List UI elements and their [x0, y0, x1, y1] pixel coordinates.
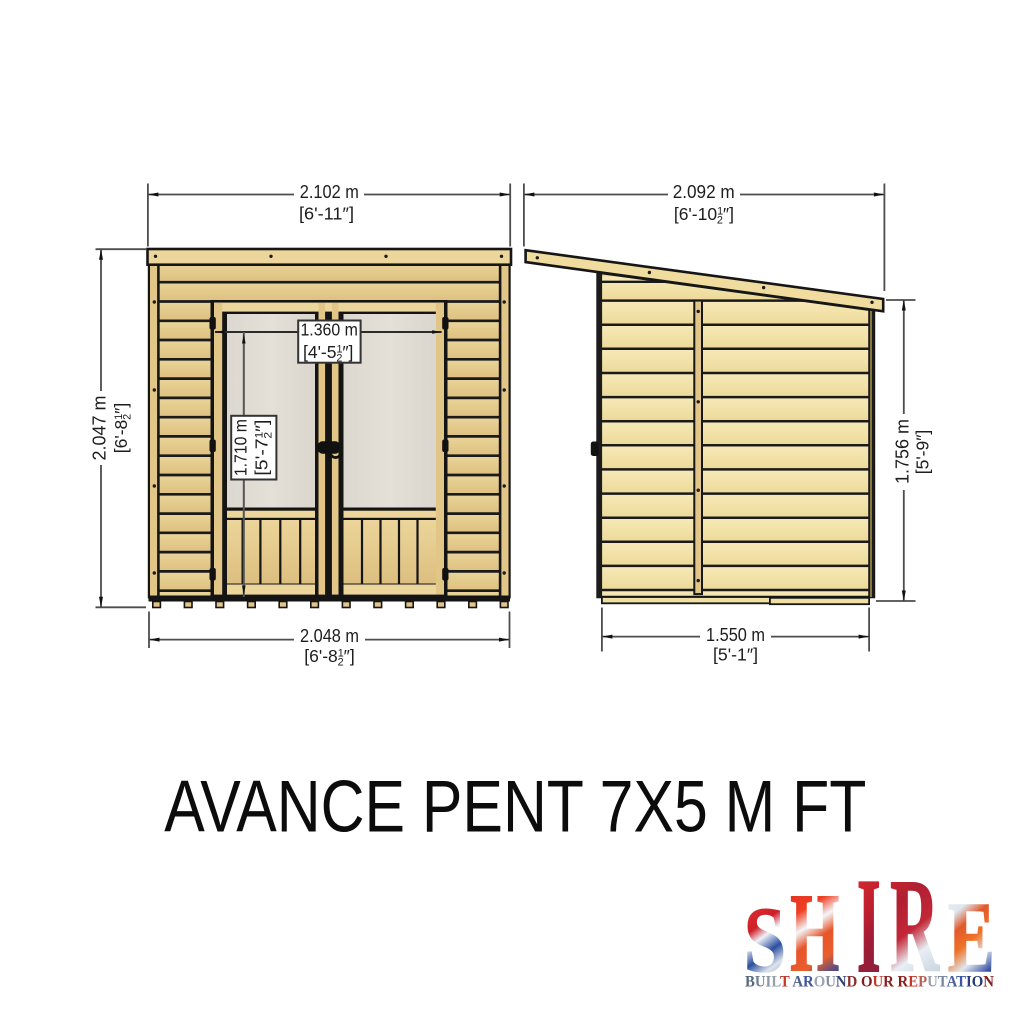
svg-text:AVANCE PENT 7X5 M FT: AVANCE PENT 7X5 M FT	[164, 765, 866, 847]
svg-text:[5'-712″]: [5'-712″]	[252, 420, 275, 476]
svg-text:[6'-11″]: [6'-11″]	[299, 203, 354, 223]
svg-text:2.048 m: 2.048 m	[300, 626, 359, 646]
svg-text:1.360 m: 1.360 m	[300, 320, 358, 340]
svg-text:2.047 m: 2.047 m	[90, 395, 110, 460]
svg-text:2.092 m: 2.092 m	[673, 182, 735, 202]
svg-text:[4'-512″]: [4'-512″]	[303, 342, 353, 365]
svg-text:[6'-812″]: [6'-812″]	[304, 646, 354, 669]
svg-text:[6'-1012″]: [6'-1012″]	[674, 204, 734, 227]
svg-text:1.710 m: 1.710 m	[231, 419, 251, 476]
svg-text:[6'-812″]: [6'-812″]	[111, 403, 134, 453]
svg-text:BUILT AROUND OUR REPUTATION: BUILT AROUND OUR REPUTATION	[745, 972, 994, 990]
svg-text:[5'-1″]: [5'-1″]	[713, 644, 758, 664]
svg-text:1.756 m: 1.756 m	[893, 419, 913, 484]
svg-text:[5'-9″]: [5'-9″]	[913, 430, 933, 475]
svg-text:2.102 m: 2.102 m	[300, 182, 359, 202]
svg-text:1.550 m: 1.550 m	[706, 625, 765, 645]
